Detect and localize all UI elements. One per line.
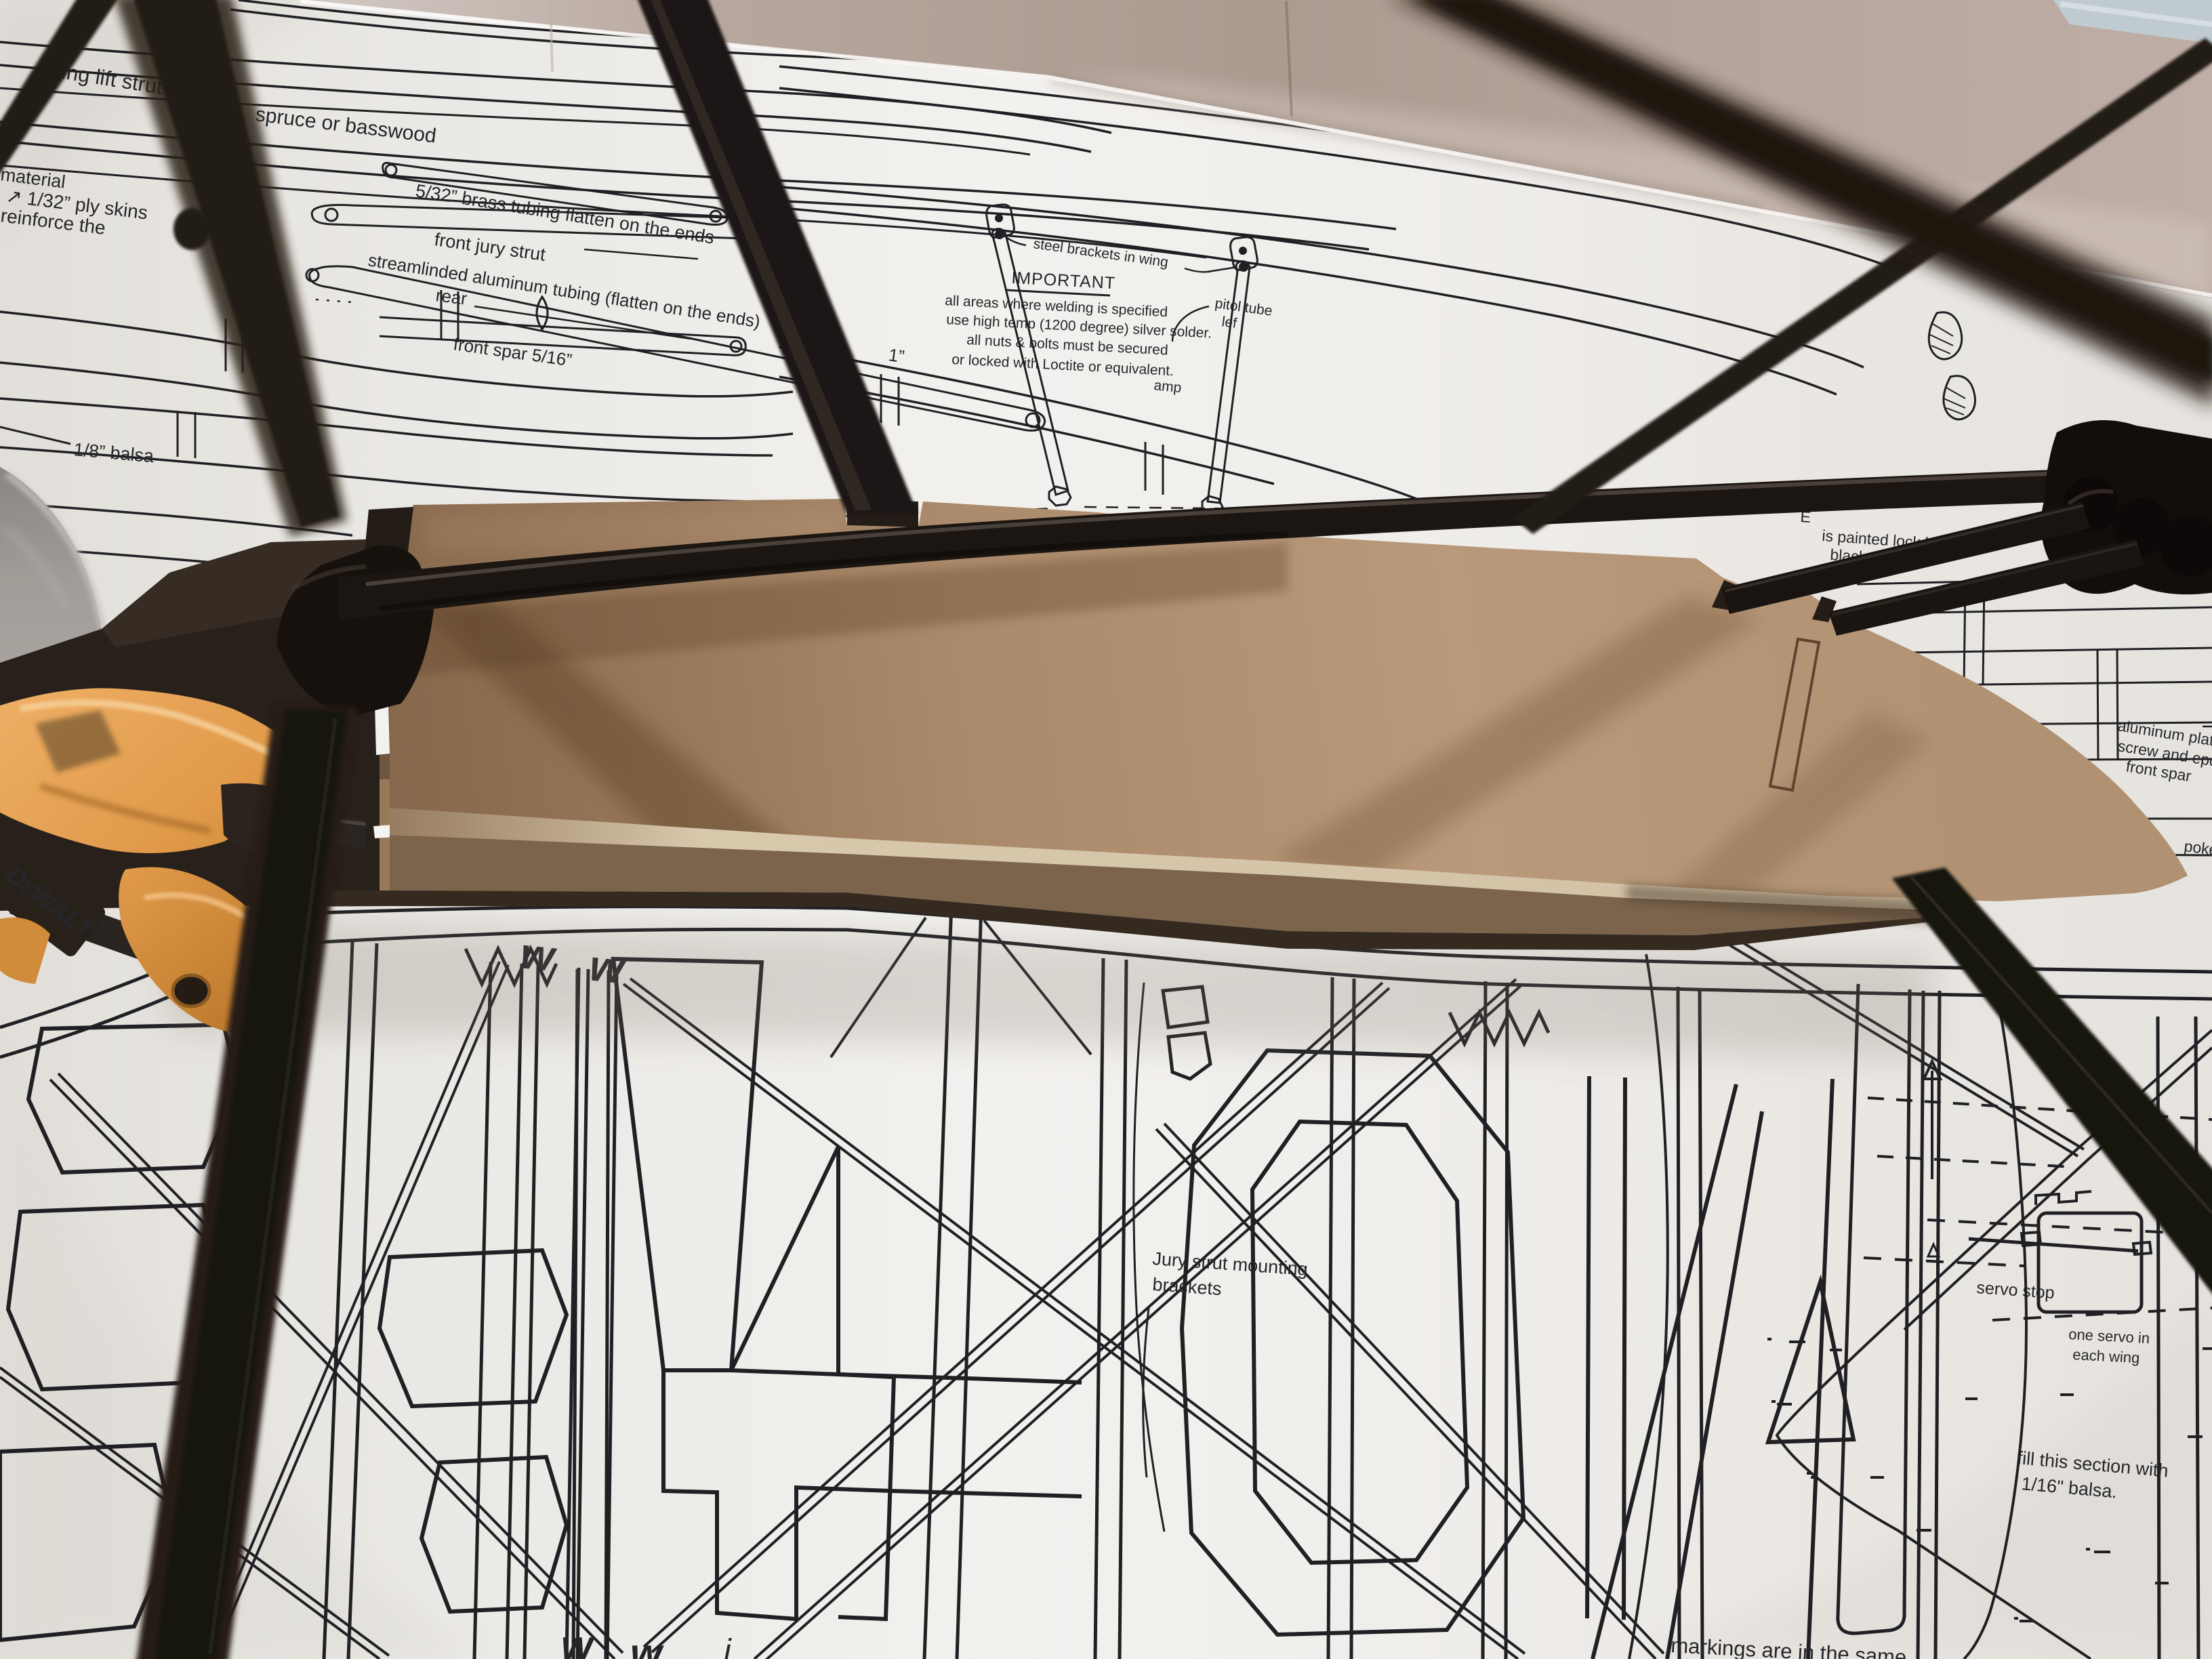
svg-text:each wing: each wing: [2072, 1346, 2140, 1366]
svg-text:amp: amp: [1153, 377, 1182, 396]
svg-text:w: w: [561, 1622, 595, 1659]
svg-text:lef: lef: [1221, 314, 1237, 331]
svg-text:w: w: [630, 1631, 664, 1659]
svg-text:1”: 1”: [887, 344, 905, 367]
svg-text:rear: rear: [434, 285, 468, 308]
